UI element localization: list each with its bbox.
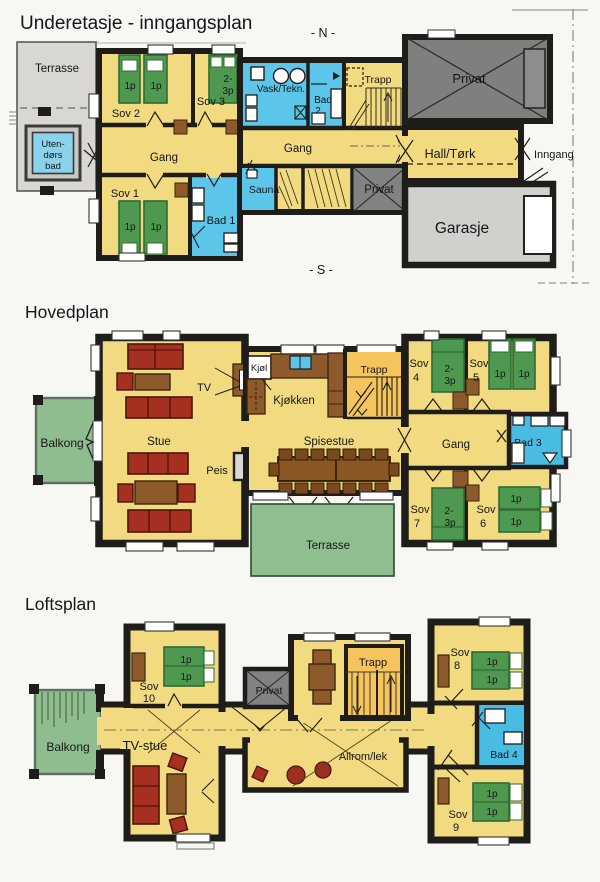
svg-text:1p: 1p	[486, 657, 498, 668]
svg-text:Stue: Stue	[147, 436, 171, 448]
svg-text:Allrom/lek: Allrom/lek	[339, 751, 388, 763]
svg-text:4: 4	[413, 372, 419, 384]
svg-text:Vask/Tekn.: Vask/Tekn.	[257, 84, 305, 95]
svg-text:Underetasje - inngangsplan: Underetasje - inngangsplan	[20, 13, 252, 34]
svg-text:1p: 1p	[150, 81, 162, 92]
svg-text:Balkong: Balkong	[46, 740, 89, 754]
svg-text:Privat: Privat	[256, 685, 283, 697]
svg-text:Sov 3: Sov 3	[197, 96, 225, 108]
svg-text:Privat: Privat	[452, 71, 486, 86]
svg-text:Kjøkken: Kjøkken	[273, 395, 315, 407]
svg-text:1p: 1p	[486, 675, 498, 686]
svg-text:Inngang: Inngang	[534, 149, 574, 161]
svg-text:dørs: dørs	[44, 150, 63, 161]
svg-text:TV: TV	[197, 382, 212, 394]
svg-text:1p: 1p	[486, 789, 498, 800]
svg-text:Sov 2: Sov 2	[112, 108, 140, 120]
svg-text:Peis: Peis	[206, 465, 228, 477]
svg-text:- S -: - S -	[309, 263, 333, 277]
svg-text:3p: 3p	[444, 376, 456, 387]
svg-text:Sov: Sov	[410, 358, 429, 370]
svg-text:Hall/Tørk: Hall/Tørk	[425, 147, 476, 161]
svg-text:6: 6	[480, 518, 486, 530]
svg-text:Gang: Gang	[150, 152, 178, 164]
svg-text:- N -: - N -	[311, 26, 335, 40]
svg-text:2-: 2-	[224, 74, 233, 85]
svg-text:bad: bad	[45, 161, 61, 172]
svg-text:2-: 2-	[445, 506, 454, 517]
svg-text:1p: 1p	[180, 655, 192, 666]
svg-text:1p: 1p	[510, 517, 522, 528]
svg-text:Privat: Privat	[364, 184, 394, 196]
svg-text:Trapp: Trapp	[360, 364, 387, 376]
svg-text:Terrasse: Terrasse	[35, 63, 79, 75]
svg-text:Sov: Sov	[451, 647, 470, 659]
svg-text:Loftsplan: Loftsplan	[25, 594, 96, 614]
svg-text:1p: 1p	[180, 672, 192, 683]
svg-text:9: 9	[453, 822, 459, 834]
svg-text:1p: 1p	[494, 369, 506, 380]
svg-text:10: 10	[143, 693, 155, 705]
svg-text:Garasje: Garasje	[435, 220, 489, 237]
svg-text:Sov: Sov	[449, 809, 468, 821]
svg-text:1p: 1p	[486, 807, 498, 818]
svg-text:Bad: Bad	[314, 95, 332, 106]
svg-text:Kjøl: Kjøl	[251, 363, 267, 374]
svg-text:Hovedplan: Hovedplan	[25, 302, 109, 322]
svg-text:Sov: Sov	[411, 504, 430, 516]
svg-text:1p: 1p	[124, 81, 136, 92]
svg-text:Terrasse: Terrasse	[306, 540, 350, 552]
svg-text:8: 8	[454, 660, 460, 672]
svg-text:Balkong: Balkong	[40, 436, 83, 450]
svg-text:Bad 1: Bad 1	[207, 215, 236, 227]
svg-text:Sov 1: Sov 1	[111, 188, 139, 200]
svg-text:Sov: Sov	[140, 681, 159, 693]
svg-text:Sov: Sov	[477, 504, 496, 516]
svg-text:Bad 4: Bad 4	[490, 749, 518, 761]
svg-text:Sov: Sov	[470, 358, 489, 370]
svg-text:3p: 3p	[444, 518, 456, 529]
svg-text:Spisestue: Spisestue	[304, 436, 355, 448]
svg-text:1p: 1p	[518, 369, 530, 380]
svg-text:7: 7	[414, 518, 420, 530]
svg-text:1p: 1p	[510, 494, 522, 505]
svg-text:Trapp: Trapp	[364, 74, 391, 86]
svg-text:Trapp: Trapp	[359, 657, 387, 669]
svg-text:2-: 2-	[445, 364, 454, 375]
svg-text:1p: 1p	[150, 222, 162, 233]
svg-text:1p: 1p	[124, 222, 136, 233]
svg-text:TV-stue: TV-stue	[123, 738, 168, 753]
svg-text:Gang: Gang	[284, 143, 312, 155]
svg-text:Sauna: Sauna	[249, 184, 280, 196]
svg-text:Gang: Gang	[442, 439, 470, 451]
svg-text:5: 5	[473, 372, 479, 384]
svg-text:Uten-: Uten-	[41, 139, 64, 150]
